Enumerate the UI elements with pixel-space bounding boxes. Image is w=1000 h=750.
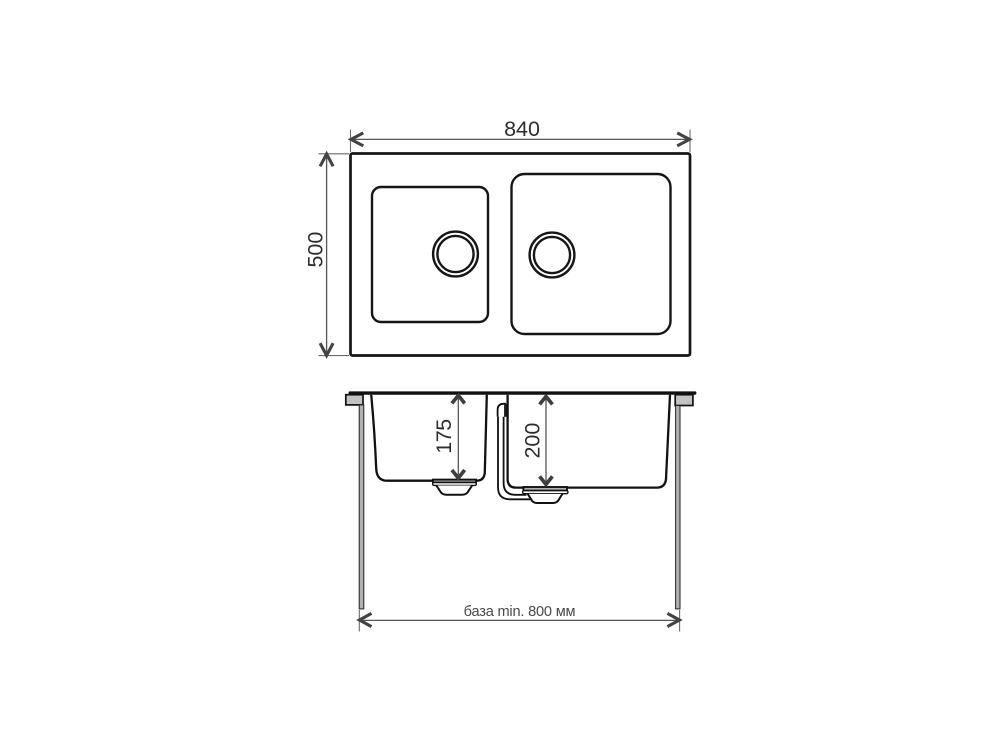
svg-text:175: 175 xyxy=(432,419,456,454)
svg-text:840: 840 xyxy=(504,117,540,141)
svg-text:500: 500 xyxy=(303,232,327,268)
svg-text:200: 200 xyxy=(521,423,545,459)
svg-text:база min. 800 мм: база min. 800 мм xyxy=(464,604,576,620)
